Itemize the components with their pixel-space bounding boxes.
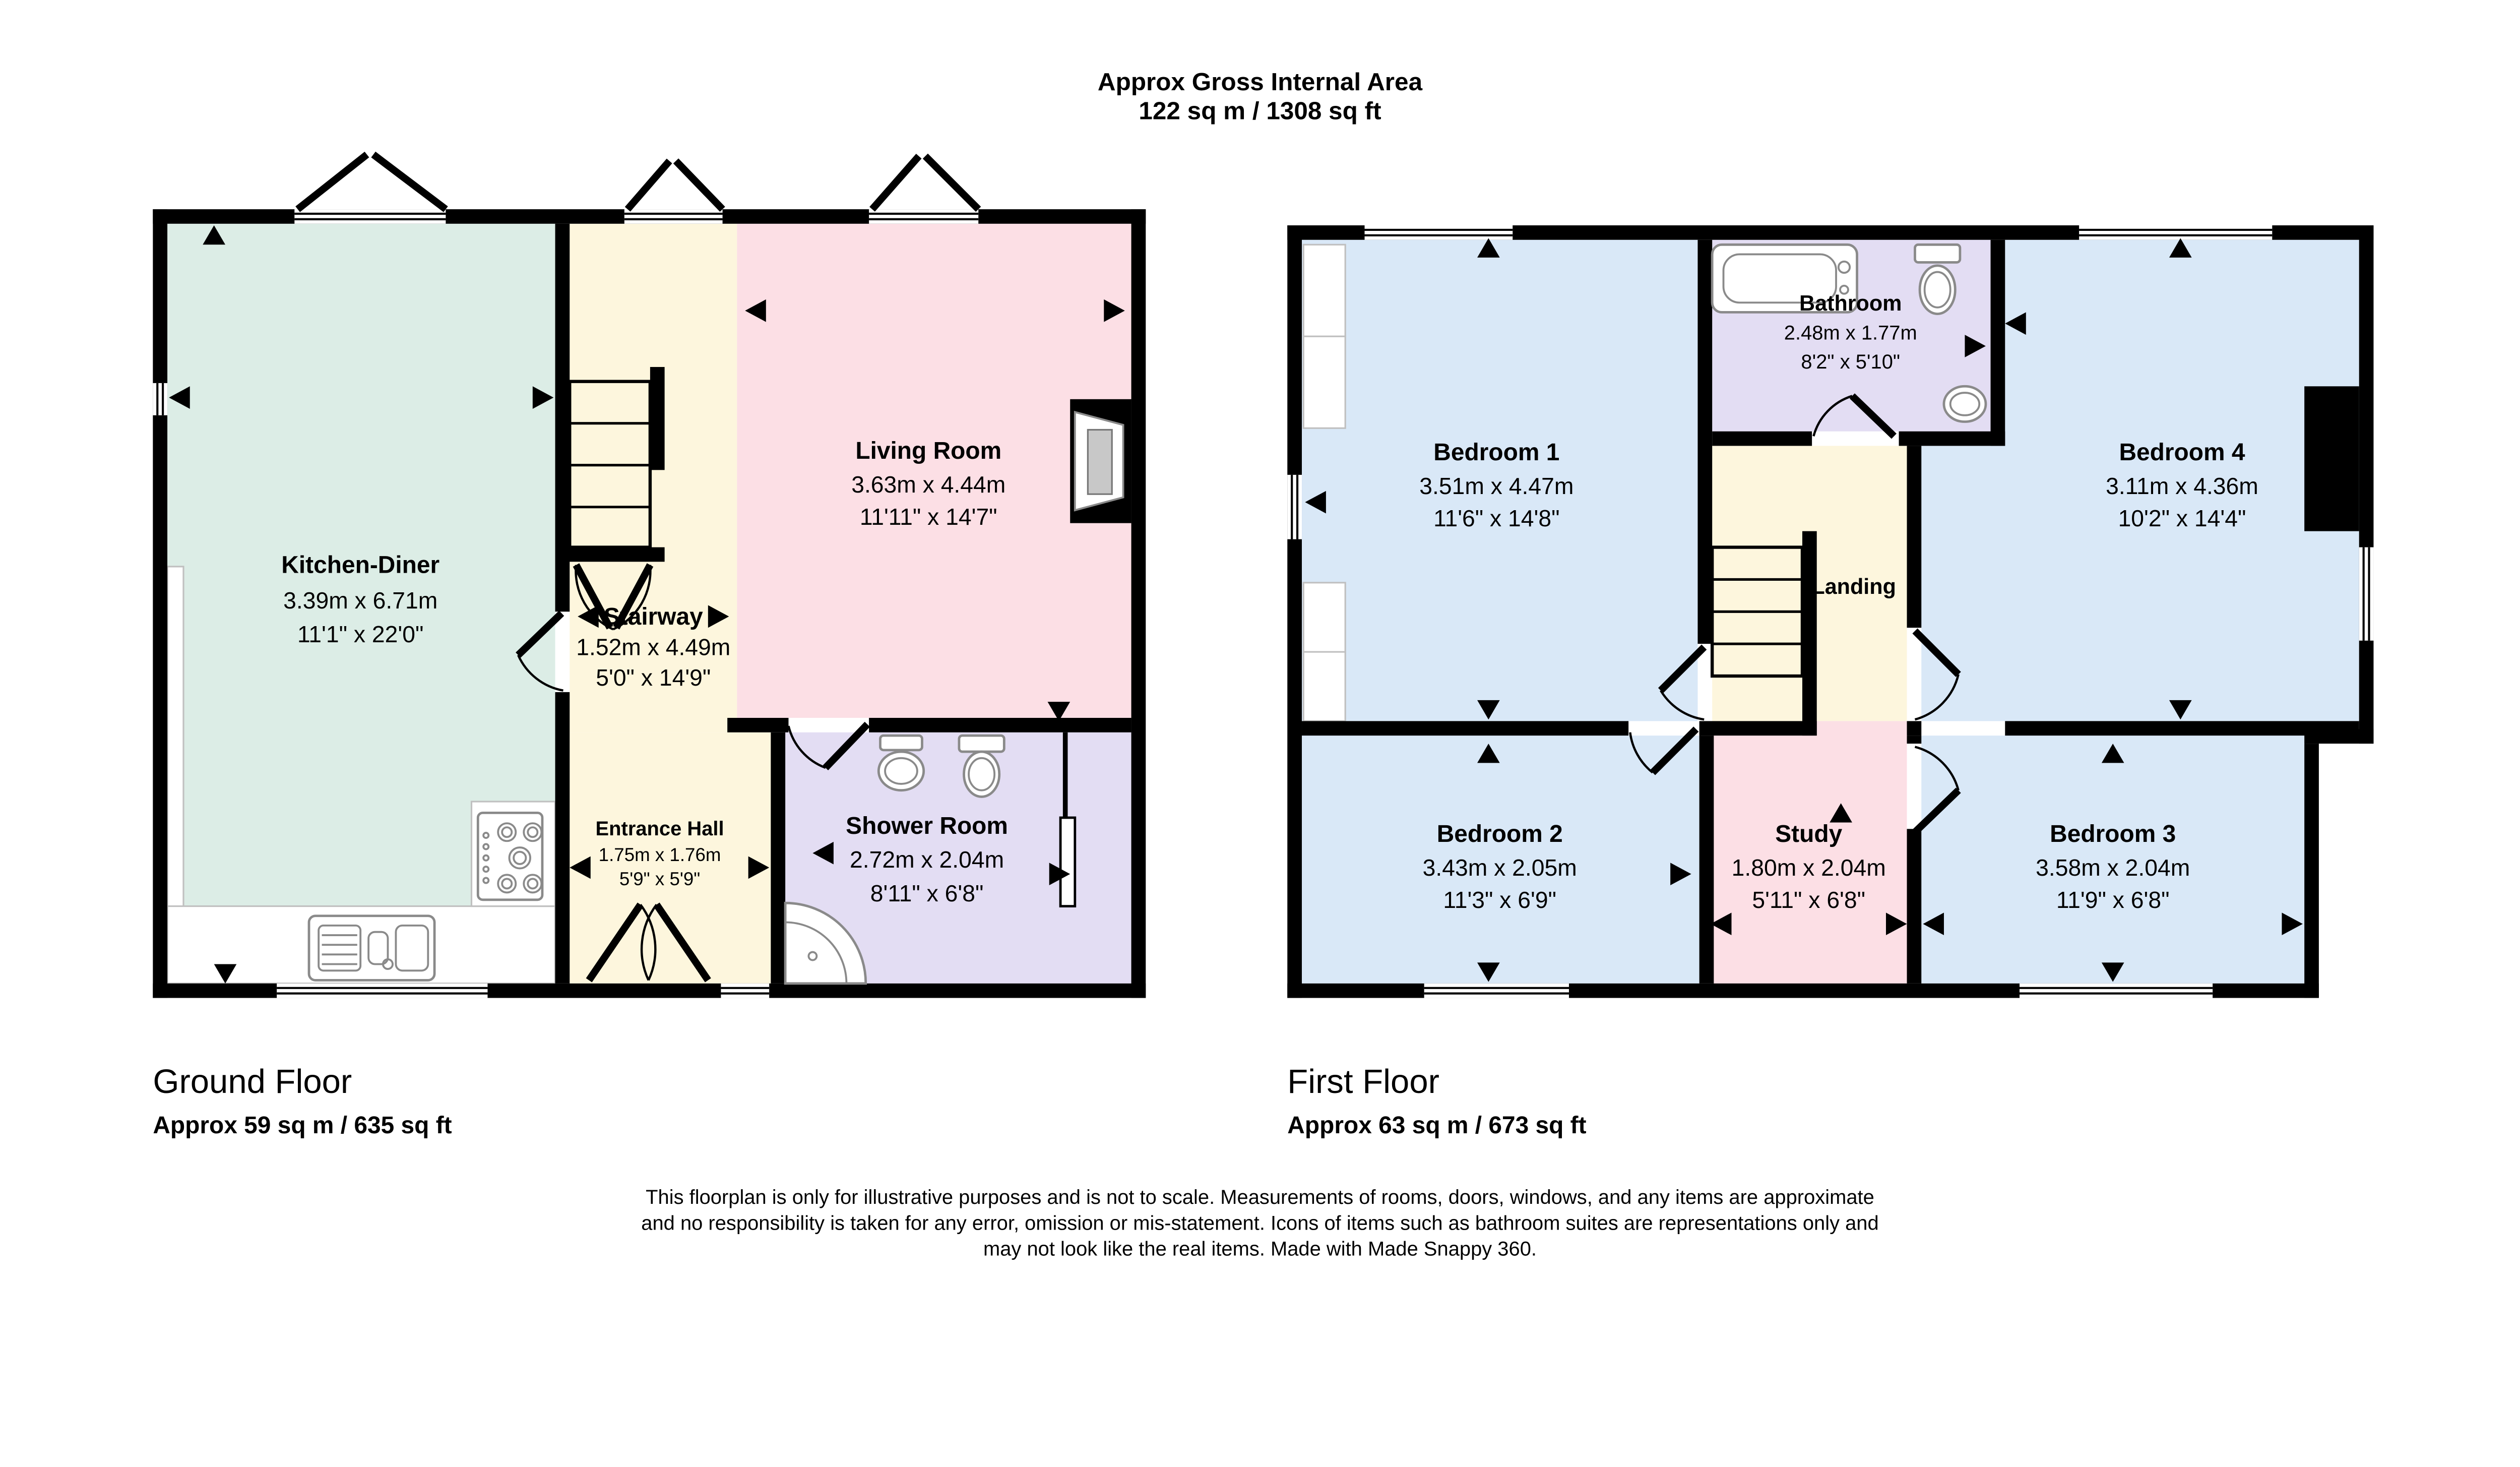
room-dims-imperial: 8'2" x 5'10" [1801,351,1900,373]
room-dims-metric: 3.63m x 4.44m [851,471,1005,498]
disclaimer-line-2: and no responsibility is taken for any e… [641,1212,1878,1234]
room-dims-imperial: 11'6" x 14'8" [1433,505,1559,531]
room-label: Stairway [604,603,703,630]
room-label: Bedroom 2 [1437,821,1563,847]
room-dims-metric: 3.43m x 2.05m [1423,854,1577,881]
room-study [1714,721,1907,983]
room-dims-metric: 1.80m x 2.04m [1732,854,1886,881]
room-dims-imperial: 5'9" x 5'9" [619,869,700,889]
room-dims-metric: 3.58m x 2.04m [2036,854,2190,881]
ground-floor-plan: Kitchen-Diner 3.39m x 6.71m 11'1" x 22'0… [153,155,1146,998]
room-label: Bathroom [1799,291,1902,316]
basin-icon [1944,386,1986,421]
kitchen-sink-icon [309,916,434,981]
floorplan-canvas: Approx Gross Internal Area 122 sq m / 13… [0,0,2520,1296]
room-label: Entrance Hall [596,818,724,840]
room-dims-metric: 3.51m x 4.47m [1419,473,1573,499]
room-dims-metric: 2.48m x 1.77m [1784,322,1917,344]
basin-icon [878,736,923,790]
room-label: Bedroom 3 [2050,821,2176,847]
first-floor-plan: Bedroom 1 3.51m x 4.47m 11'6" x 14'8" Ba… [1287,225,2373,998]
ground-floor-caption: Ground Floor [153,1063,352,1101]
room-label: Kitchen-Diner [281,552,439,579]
room-label: Bedroom 1 [1433,439,1559,466]
chimney-breast [2304,386,2359,531]
room-dims-metric: 3.11m x 4.36m [2106,473,2258,499]
title-line-2: 122 sq m / 1308 sq ft [1139,97,1381,125]
room-dims-imperial: 11'11" x 14'7" [860,504,997,530]
room-dims-imperial: 8'11" x 6'8" [870,880,984,906]
ground-floor-area: Approx 59 sq m / 635 sq ft [153,1112,452,1139]
room-dims-imperial: 5'11" x 6'8" [1752,887,1865,913]
room-dims-imperial: 11'1" x 22'0" [297,621,423,647]
room-label: Bedroom 4 [2119,439,2245,466]
room-dims-imperial: 10'2" x 14'4" [2118,505,2246,531]
room-dims-metric: 1.75m x 1.76m [599,844,721,865]
room-label: Shower Room [846,813,1008,839]
hob-icon [478,813,542,899]
toilet-icon [1915,244,1960,314]
room-label: Study [1775,821,1842,847]
fireplace-icon [1070,399,1131,523]
disclaimer-line-1: This floorplan is only for illustrative … [646,1186,1874,1208]
room-label: Living Room [855,438,1001,464]
room-dims-imperial: 11'9" x 6'8" [2056,887,2170,913]
room-dims-imperial: 5'0" x 14'9" [596,664,711,691]
room-dims-metric: 3.39m x 6.71m [283,587,437,614]
room-dims-metric: 1.52m x 4.49m [576,634,730,660]
room-dims-imperial: 11'3" x 6'9" [1443,887,1556,913]
bay-window-icon [298,155,979,210]
disclaimer: This floorplan is only for illustrative … [641,1186,1878,1260]
room-dims-metric: 2.72m x 2.04m [850,846,1004,873]
first-floor-area: Approx 63 sq m / 673 sq ft [1287,1112,1586,1139]
room-label: Landing [1811,575,1896,599]
floor-captions: Ground Floor Approx 59 sq m / 635 sq ft … [153,1063,1586,1139]
page-title: Approx Gross Internal Area 122 sq m / 13… [1098,68,1423,125]
disclaimer-line-3: may not look like the real items. Made w… [983,1238,1537,1260]
title-line-1: Approx Gross Internal Area [1098,68,1423,96]
first-floor-caption: First Floor [1287,1063,1439,1101]
